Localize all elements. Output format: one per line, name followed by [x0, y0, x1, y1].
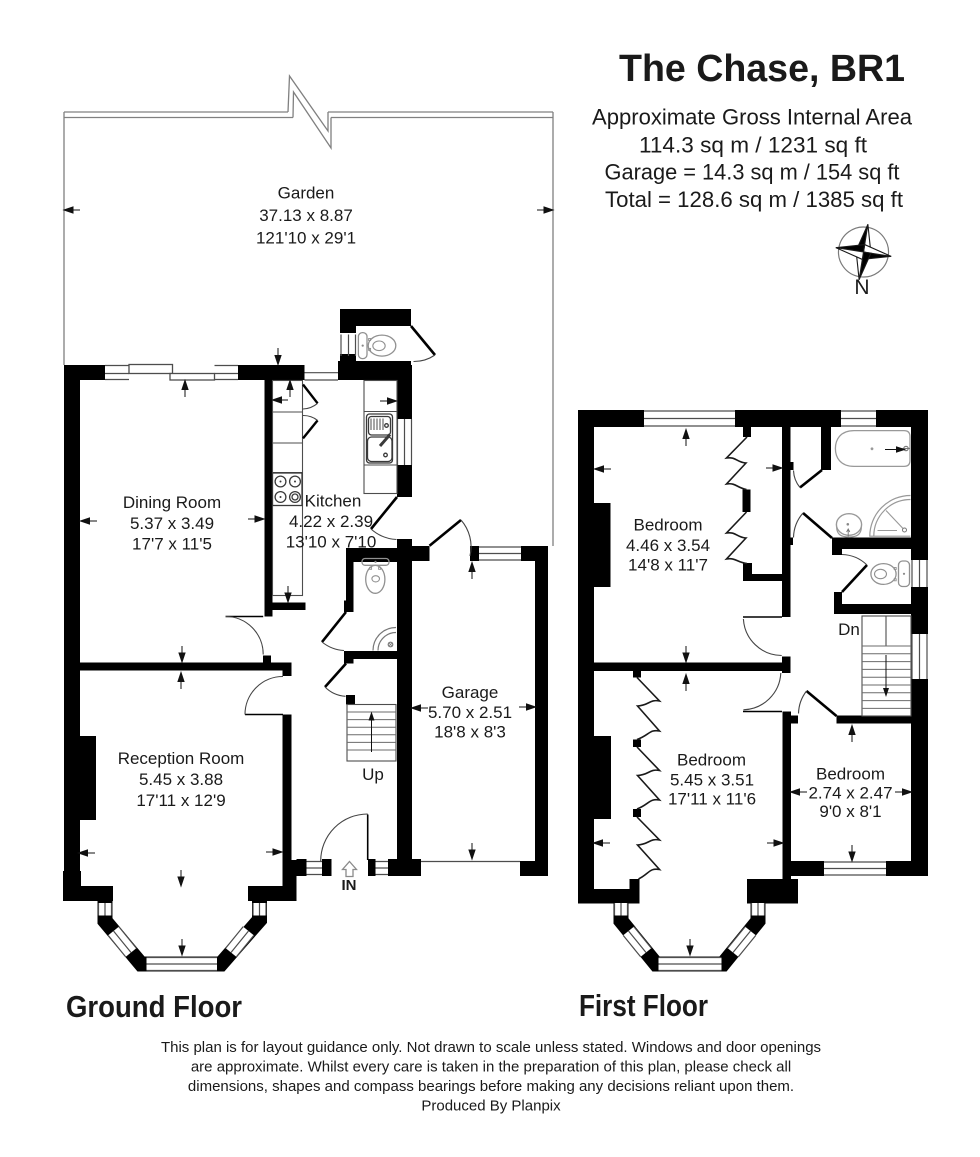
svg-text:17'11 x 11'6: 17'11 x 11'6 [668, 790, 756, 809]
svg-text:Reception Room: Reception Room [118, 749, 245, 768]
svg-text:18'8 x 8'3: 18'8 x 8'3 [434, 723, 506, 742]
svg-text:Dining Room: Dining Room [123, 493, 221, 512]
svg-text:37.13 x 8.87: 37.13 x 8.87 [259, 206, 353, 225]
svg-text:Garage = 14.3 sq m / 154 sq ft: Garage = 14.3 sq m / 154 sq ft [605, 160, 900, 185]
svg-text:Up: Up [362, 765, 384, 784]
svg-text:5.37 x 3.49: 5.37 x 3.49 [130, 514, 214, 533]
svg-text:First Floor: First Floor [579, 988, 708, 1023]
svg-text:5.45 x 3.51: 5.45 x 3.51 [670, 771, 754, 790]
svg-text:This plan is for layout guidan: This plan is for layout guidance only. N… [161, 1039, 821, 1056]
svg-text:IN: IN [342, 877, 357, 894]
svg-text:4.46 x 3.54: 4.46 x 3.54 [626, 536, 710, 555]
svg-text:Bedroom: Bedroom [634, 516, 703, 535]
svg-text:are approximate. Whilst every: are approximate. Whilst every care is ta… [191, 1059, 791, 1076]
svg-text:Dn: Dn [838, 620, 860, 639]
svg-text:13'10 x 7'10: 13'10 x 7'10 [286, 533, 377, 552]
svg-text:9'0 x 8'1: 9'0 x 8'1 [819, 802, 881, 821]
svg-text:5.45 x 3.88: 5.45 x 3.88 [139, 770, 223, 789]
svg-text:Approximate Gross Internal Are: Approximate Gross Internal Area [592, 105, 913, 130]
svg-text:17'11 x 12'9: 17'11 x 12'9 [136, 791, 225, 810]
svg-text:Total = 128.6 sq m / 1385 sq f: Total = 128.6 sq m / 1385 sq ft [605, 187, 903, 212]
svg-text:121'10 x 29'1: 121'10 x 29'1 [256, 229, 356, 248]
svg-text:114.3 sq m / 1231 sq ft: 114.3 sq m / 1231 sq ft [639, 133, 867, 158]
svg-text:2.74 x 2.47: 2.74 x 2.47 [808, 784, 892, 803]
svg-text:14'8 x 11'7: 14'8 x 11'7 [628, 556, 708, 575]
svg-text:N: N [854, 276, 869, 299]
svg-text:17'7 x 11'5: 17'7 x 11'5 [132, 535, 212, 554]
svg-text:Ground Floor: Ground Floor [66, 989, 242, 1024]
svg-text:Bedroom: Bedroom [677, 751, 746, 770]
svg-text:Garage: Garage [442, 683, 499, 702]
svg-text:Kitchen: Kitchen [305, 492, 362, 511]
svg-text:The Chase, BR1: The Chase, BR1 [619, 48, 905, 90]
svg-text:dimensions, shapes and compass: dimensions, shapes and compass bearings … [188, 1078, 794, 1095]
svg-text:Garden: Garden [278, 184, 335, 203]
svg-text:Produced By Planpix: Produced By Planpix [421, 1098, 561, 1115]
svg-text:5.70 x 2.51: 5.70 x 2.51 [428, 703, 512, 722]
svg-text:Bedroom: Bedroom [816, 765, 885, 784]
svg-text:4.22 x 2.39: 4.22 x 2.39 [289, 512, 373, 531]
